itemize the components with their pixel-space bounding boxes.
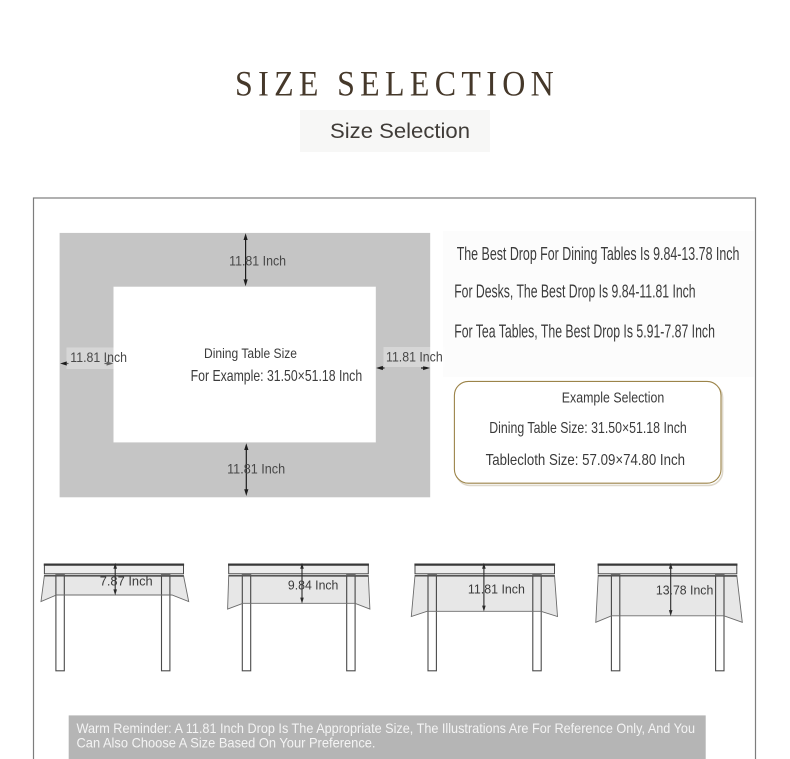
svg-text:9.84 Inch: 9.84 Inch (288, 577, 339, 592)
svg-text:For Example: 31.50×51.18 Inch: For Example: 31.50×51.18 Inch (191, 368, 363, 385)
svg-text:Dining Table Size: Dining Table Size (204, 346, 297, 361)
svg-text:SIZE SELECTION: SIZE SELECTION (235, 64, 559, 104)
svg-text:13.78 Inch: 13.78 Inch (656, 583, 713, 598)
svg-text:The Best Drop For Dining Table: The Best Drop For Dining Tables Is 9.84-… (457, 244, 740, 264)
svg-text:Can Also Choose A Size Based O: Can Also Choose A Size Based On Your Pre… (77, 734, 376, 750)
svg-text:7.87 Inch: 7.87 Inch (100, 574, 153, 589)
svg-text:11.81 Inch: 11.81 Inch (70, 349, 127, 365)
svg-text:Size Selection: Size Selection (330, 120, 470, 143)
svg-text:11.81 Inch: 11.81 Inch (227, 460, 285, 476)
svg-text:11.81 Inch: 11.81 Inch (468, 581, 525, 596)
svg-text:11.81 Inch: 11.81 Inch (229, 252, 286, 268)
svg-text:Example Selection: Example Selection (562, 391, 665, 407)
svg-text:For Tea Tables, The Best Drop: For Tea Tables, The Best Drop Is 5.91-7.… (454, 321, 715, 341)
svg-text:Dining Table Size: 31.50×51.18: Dining Table Size: 31.50×51.18 Inch (489, 420, 687, 437)
svg-text:For Desks, The Best Drop Is 9.: For Desks, The Best Drop Is 9.84-11.81 I… (454, 282, 695, 302)
svg-text:Tablecloth Size: 57.09×74.80 I: Tablecloth Size: 57.09×74.80 Inch (486, 452, 685, 469)
svg-text:11.81 Inch: 11.81 Inch (386, 349, 443, 365)
